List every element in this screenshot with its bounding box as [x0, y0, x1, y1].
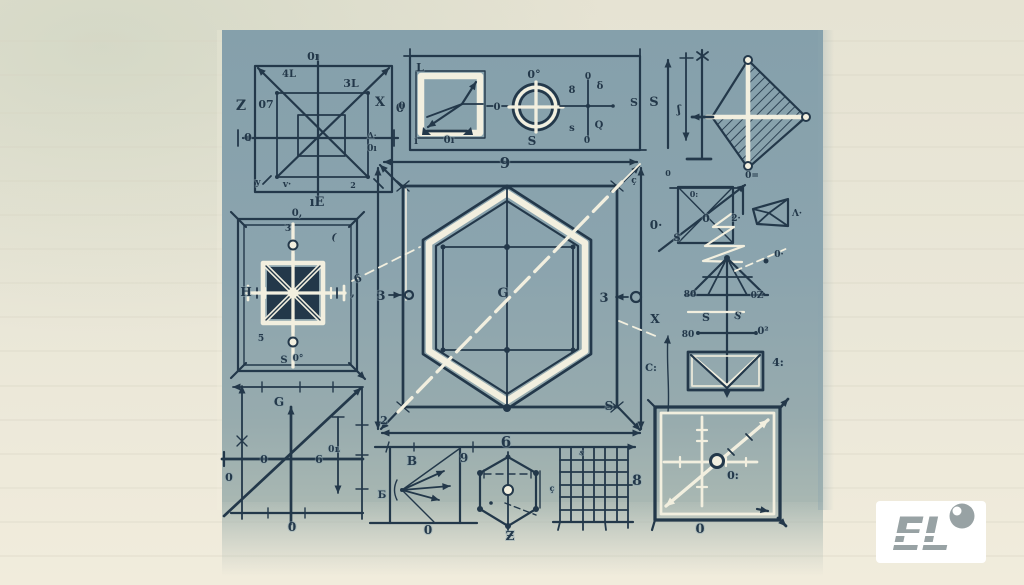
logo-el: EL [876, 501, 986, 563]
diagram-label: S [630, 96, 638, 109]
diagram-label: S [605, 399, 614, 413]
diagram-label: y [254, 178, 261, 188]
diagram-label: 8 [632, 473, 642, 489]
diagram-label: Z [236, 98, 246, 114]
diagram-label: H [240, 285, 251, 299]
diagram-label: S [702, 311, 710, 324]
diagram-label: Δ· [368, 130, 377, 140]
diagram-label: ç [550, 483, 555, 493]
diagram-label: 0 [695, 522, 704, 537]
diagram-label: 0ı [444, 135, 455, 146]
diagram-label: 0ı [367, 144, 377, 154]
diagram-label: 2· [731, 214, 740, 224]
diagram-label: S [649, 95, 658, 110]
diagram-label: S [280, 355, 287, 366]
diagram-label: 9 [500, 154, 510, 172]
diagram-label: G [274, 395, 284, 409]
diagram-label: L [416, 61, 424, 74]
diagram-label: 0: [690, 189, 699, 199]
screenshot-root: 0ı4L3LZ07X00Δ·0ıyv·2ıE0Lı0ı00°S08δsQ0SSʃ… [0, 0, 1024, 585]
diagram-label: 80 [684, 290, 697, 300]
diagram-label: 0= [745, 171, 759, 181]
diagram-label: 3 [599, 291, 608, 306]
diagram-label: ıE [310, 195, 325, 210]
logo-slit [884, 533, 946, 536]
diagram-label: 5 [258, 334, 264, 344]
diagram-label: 80 [682, 330, 695, 340]
diagram-label: Ƶ [506, 529, 515, 543]
diagram-label: 0° [293, 354, 304, 364]
diagram-label: 3L [343, 77, 359, 90]
diagram-label: 2 [350, 180, 356, 190]
logo-slit [884, 542, 950, 545]
diagram-label: 0 [288, 520, 296, 534]
diagram-label: Λ· [791, 209, 802, 219]
diagram-label: 0, [292, 208, 302, 219]
diagram-label: 6 [501, 433, 511, 451]
diagram-label: C: [645, 363, 657, 374]
diagram-label: δ [597, 81, 604, 92]
diagram-label: 9 [460, 451, 468, 465]
diagram-label: S [528, 134, 537, 148]
diagram-label: 3 [285, 224, 291, 234]
diagram-label: 0 [702, 212, 710, 225]
diagram-label: 2 [380, 414, 388, 427]
diagram-label: 0: [727, 469, 739, 482]
diagram-label: 0· [774, 250, 783, 260]
diagram-label: 0 [585, 72, 591, 82]
diagram-label: ç [631, 176, 637, 186]
diagram-label: 0· [650, 218, 663, 232]
blueprint-sketch: 0ı4L3LZ07X00Δ·0ıyv·2ıE0Lı0ı00°S08δsQ0SSʃ… [0, 0, 1024, 585]
diagram-label: Б [378, 490, 387, 501]
diagram-label: 0ʟ [328, 445, 340, 455]
diagram-label: 0 [494, 102, 501, 113]
diagram-label: 0 [665, 168, 671, 178]
diagram-label: 0° [527, 68, 540, 81]
diagram-label: s [569, 123, 575, 134]
diagram-label: Q [595, 120, 604, 131]
diagram-label: S [673, 233, 680, 244]
diagram-label: 0 [399, 101, 406, 112]
diagram-label: 4L [282, 69, 296, 80]
diagram-label: 0Z [751, 291, 764, 301]
diagram-label: 0 [260, 453, 268, 466]
diagram-label: 0 [584, 136, 590, 146]
diagram-label: ı [414, 136, 418, 147]
diagram-label: 4: [772, 356, 784, 369]
diagram-label: v· [282, 180, 291, 190]
diagram-label: B [407, 454, 417, 468]
diagram-label: 0 [244, 131, 252, 144]
logo-ball-highlight [953, 507, 962, 516]
logo-ball-icon [950, 504, 975, 529]
diagram-label: G [497, 286, 508, 301]
diagram-label: X [650, 312, 660, 326]
diagram-label: 8 [569, 85, 576, 96]
diagram-label: 0 [424, 523, 432, 537]
diagram-label: , [351, 288, 354, 299]
diagram-label: 6 [315, 453, 323, 466]
diagram-label: 0² [757, 326, 768, 337]
diagram-label: 0 [225, 471, 233, 484]
diagram-label: 0ı [307, 50, 319, 63]
diagram-label: X [375, 95, 386, 110]
diagram-label: 3 [376, 289, 385, 304]
diagram-label: 07 [258, 98, 273, 111]
